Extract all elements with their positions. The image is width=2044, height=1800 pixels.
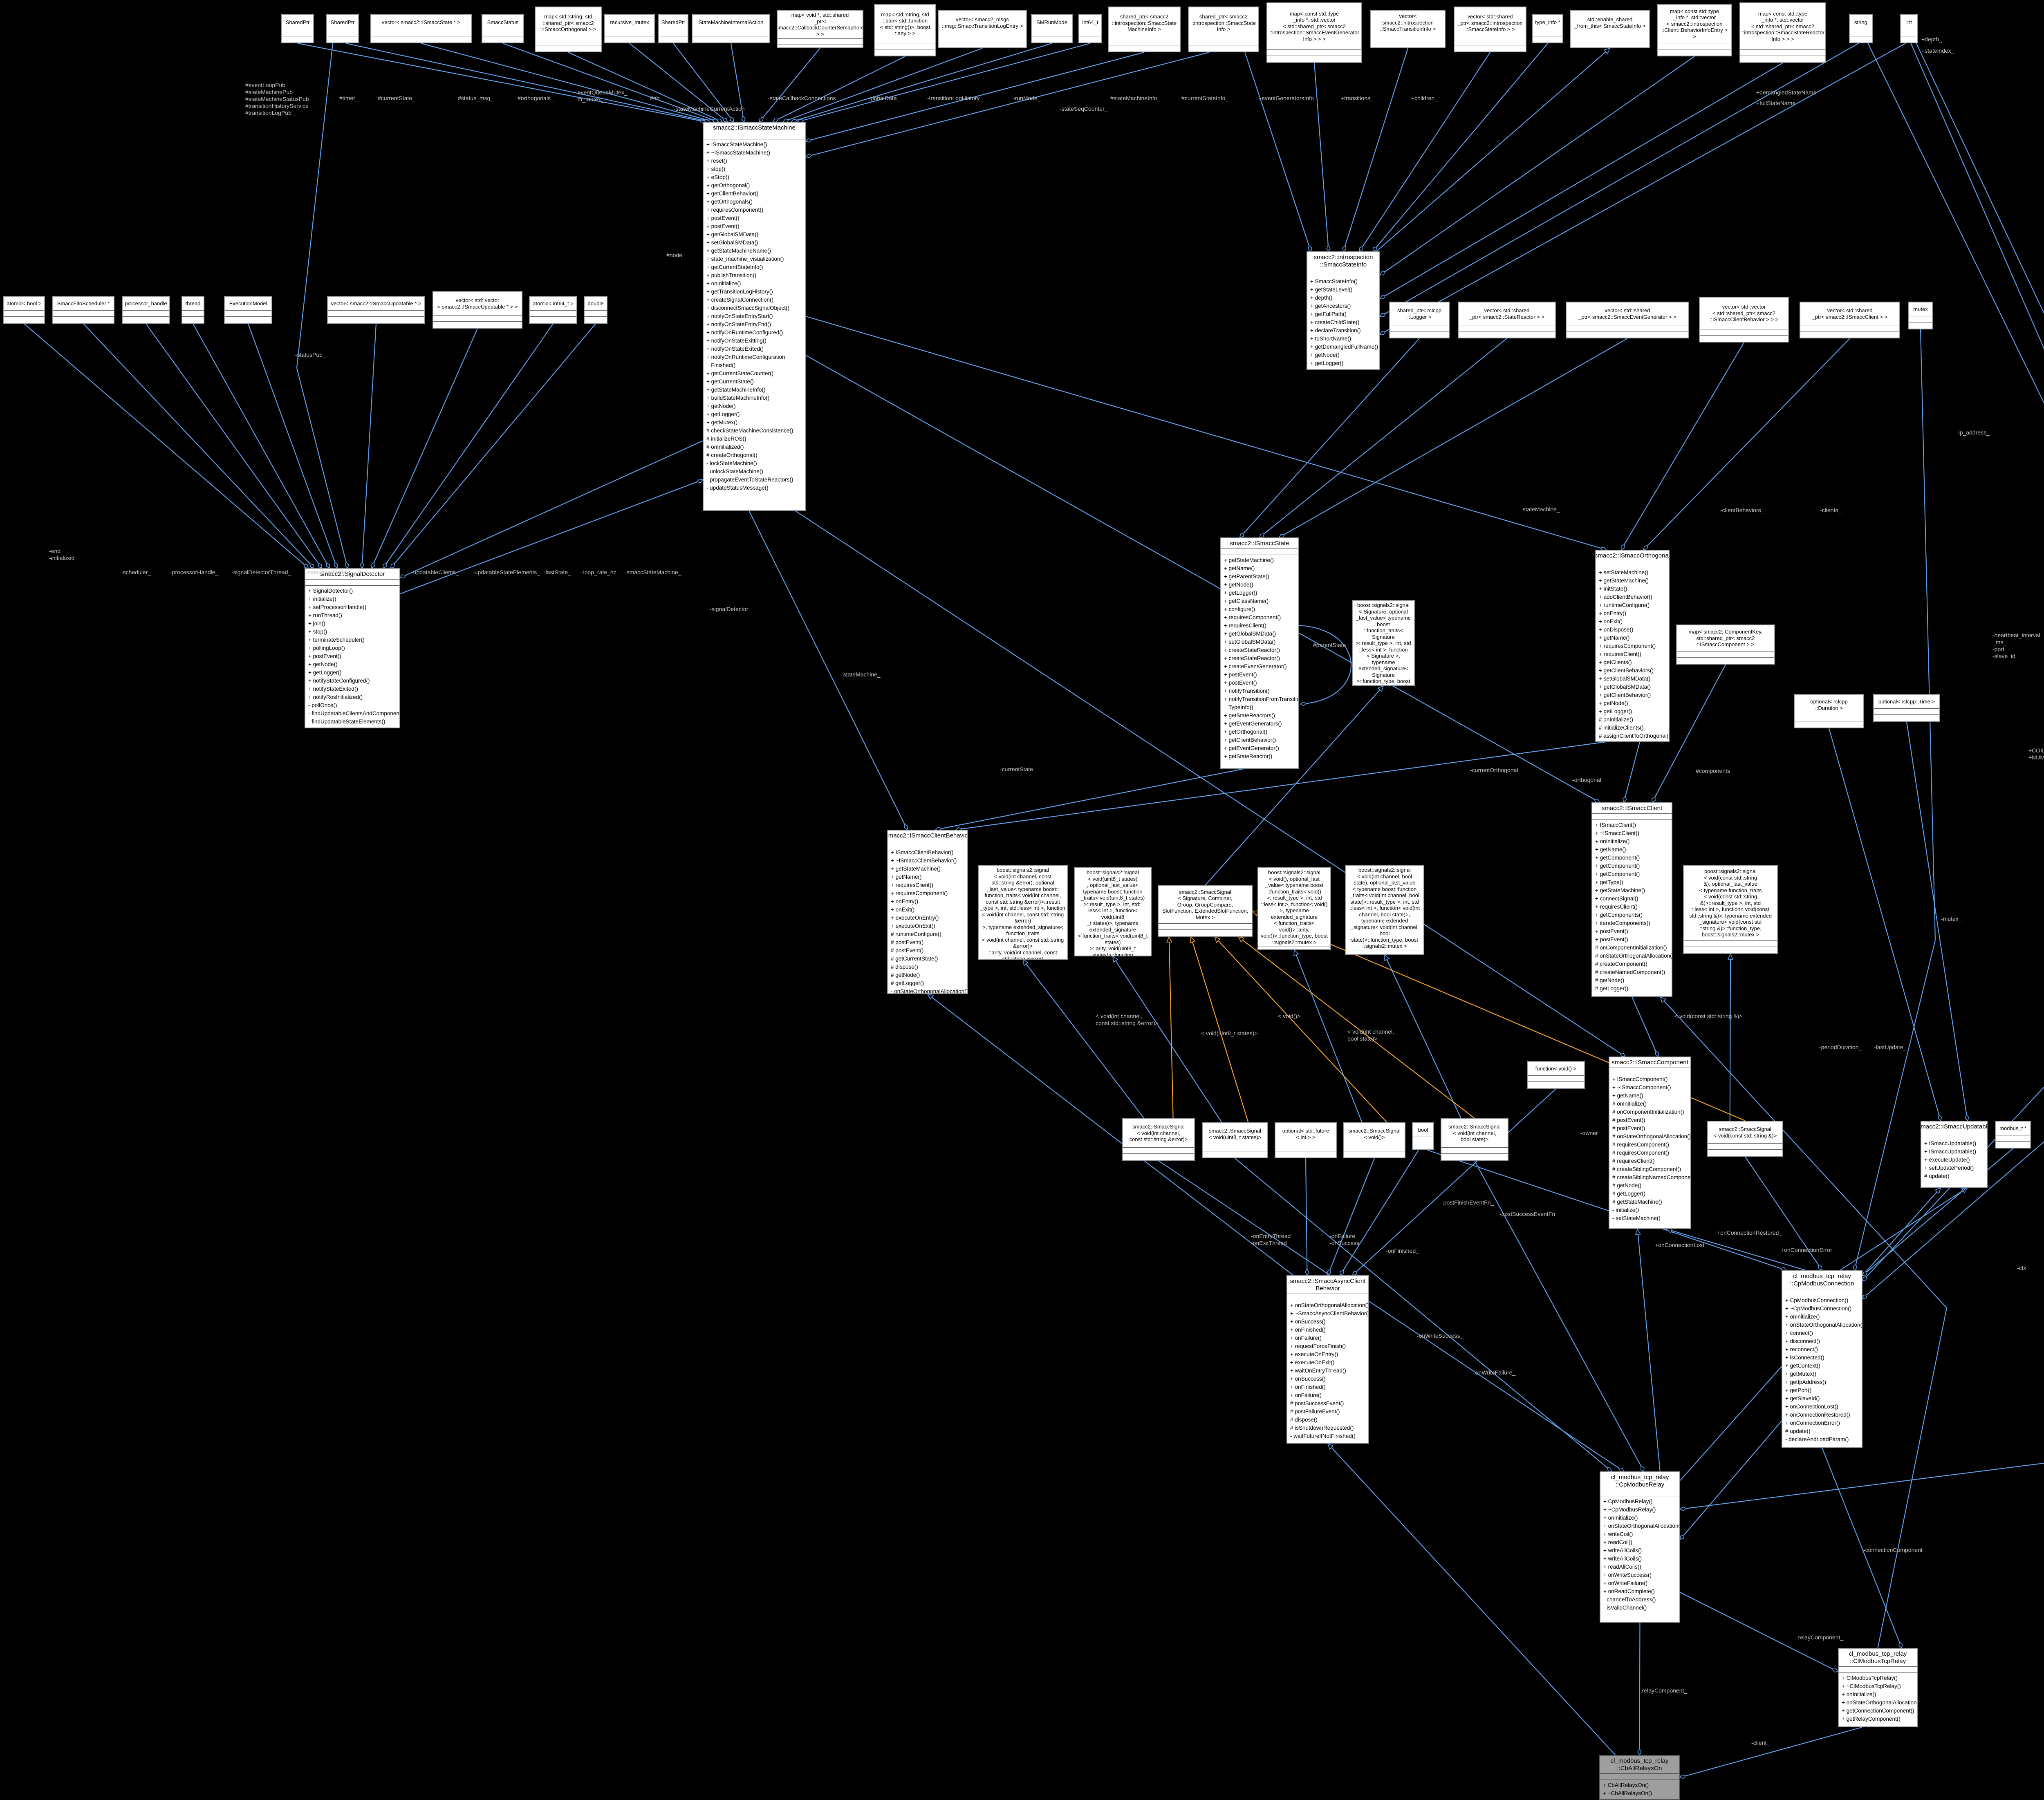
member: + getEventGenerators() — [1224, 720, 1295, 728]
member: + requestForceFinish() — [1290, 1342, 1365, 1350]
edge-label: -updatableStateElements_ — [473, 569, 540, 576]
edge-label: -clients_ — [1820, 507, 1841, 514]
edge-48 — [936, 769, 1244, 830]
member: + reconnect() — [1785, 1346, 1859, 1354]
edge-label: -clientBehaviors_ — [1720, 507, 1764, 514]
box-title: string — [1850, 15, 1872, 30]
box-title: optional< rclcpp ::Duration > — [1795, 695, 1863, 715]
class-box-IS[interactable]: smacc2::ISmaccState+ getStateMachine()+ … — [1220, 537, 1299, 769]
edge-label: #nh_ — [650, 95, 663, 102]
member: + getType() — [1595, 878, 1669, 887]
edge-44 — [1643, 338, 1850, 550]
member: + getComponent() — [1595, 854, 1669, 862]
attributes-compartment — [1609, 1068, 1690, 1074]
edge-label: -executionModel_ — [306, 569, 351, 576]
box-title: SMRunMode — [1032, 15, 1072, 30]
box-title: optional< rclcpp::Time > — [1874, 695, 1939, 709]
attributes-compartment — [282, 30, 313, 36]
edge-29 — [83, 324, 314, 568]
member: + notifyOnStateEntryEnd() — [706, 320, 802, 329]
member: + getMutex() — [706, 419, 802, 427]
operations-compartment — [778, 45, 863, 48]
member: + getName() — [891, 873, 964, 881]
edge-label: #parentState_ — [1313, 642, 1349, 649]
type-box-T18: vector< std::shared _ptr< smacc2::intros… — [1454, 7, 1526, 52]
operations-compartment — [659, 36, 688, 43]
member: + setGlobalSMData() — [706, 239, 802, 247]
member: # onComponentInitialization() — [1595, 944, 1669, 952]
member: + getSlaveId() — [1785, 1395, 1859, 1403]
edge-15 — [1245, 52, 1311, 251]
operations-compartment — [1795, 721, 1863, 728]
edge-label: -lastUpdate_ — [1874, 1044, 1906, 1051]
attributes-compartment — [53, 311, 114, 317]
type-box-T25: atomic< bool > — [3, 296, 45, 324]
edge-2 — [421, 43, 714, 122]
attributes-compartment — [1189, 39, 1258, 45]
member: + onReadComplete() — [1603, 1587, 1676, 1596]
member: + getCurrentStateInfo() — [706, 263, 802, 271]
edge-label: -stateMachine_ — [841, 671, 881, 678]
member: + getCurrentState() — [706, 378, 802, 386]
member: + getName() — [1599, 634, 1666, 642]
members-compartment: + ISmaccUpdatable()+ ISmaccUpdatable()+ … — [1921, 1138, 1987, 1187]
members-compartment: + SignalDetector()+ initialize()+ setPro… — [305, 586, 399, 728]
member: # postEvent() — [1612, 1116, 1688, 1124]
member: + onInitialize() — [1785, 1313, 1859, 1321]
operations-compartment — [1159, 930, 1252, 936]
edge-label: +onConnectionRestored_ — [1717, 1229, 1782, 1236]
edge-label: -loop_rate_hz — [581, 569, 616, 576]
member: + stop() — [706, 165, 802, 173]
member: # postEvent() — [1612, 1124, 1688, 1133]
member: + ~CpModbusConnection() — [1785, 1305, 1859, 1313]
member: + getComponents() — [1595, 911, 1669, 919]
member: # onInitialized() — [706, 443, 802, 451]
member: + ~ISmaccStateMachine() — [706, 149, 802, 157]
type-box-T31: vector< std::vector < smacc2::ISmaccUpda… — [433, 291, 522, 329]
member: # postFailureEvent() — [1290, 1408, 1365, 1416]
operations-compartment — [123, 317, 169, 323]
member: + onDispose() — [1599, 626, 1666, 634]
attributes-compartment — [1528, 1076, 1584, 1082]
class-box-IC[interactable]: smacc2::ISmaccClient+ ISmaccClient()+ ~I… — [1591, 802, 1672, 997]
type-box-T15: shared_ptr< smacc2 ::introspection::Smac… — [1188, 7, 1259, 52]
class-box-CPC[interactable]: cl_modbus_tcp_relay ::CpModbusConnection… — [1782, 1270, 1862, 1448]
member: + writeCoil() — [1603, 1530, 1676, 1538]
class-box-SSI[interactable]: smacc2::introspection ::SmaccStateInfo+ … — [1307, 251, 1380, 370]
edge-18 — [1360, 52, 1490, 251]
type-box-T5: map< std::string, std ::shared_ptr< smac… — [535, 7, 602, 52]
member: + notifyRosInitialized() — [308, 693, 397, 701]
class-box-SACB[interactable]: smacc2::SmaccAsyncClient Behavior+ onSta… — [1286, 1275, 1369, 1444]
member: + onStateOrthogonalAllocation() — [1842, 1699, 1914, 1707]
operations-compartment — [1459, 331, 1555, 338]
member: + createEventGenerator() — [1224, 663, 1295, 671]
box-title: boost::signals2::signal < void(uint8_t s… — [1075, 868, 1151, 956]
edge-label: +COIL_BASE_ADDRESS_ +NUM_CHANNELS — [2028, 747, 2044, 761]
member: + getFullPath() — [1310, 310, 1376, 318]
member: + getLogger() — [706, 410, 802, 419]
box-title: int64_t — [1079, 15, 1101, 30]
operations-compartment — [1850, 36, 1872, 43]
operations-compartment — [1189, 45, 1258, 51]
member: + ISmaccStateMachine() — [706, 141, 802, 149]
member: + requiresClient() — [1599, 650, 1666, 658]
member: # createComponent() — [1595, 960, 1669, 968]
type-box-T24: int — [1900, 14, 1918, 43]
attributes-compartment — [182, 311, 204, 317]
edge-label: -smaccStateMachine_ — [625, 569, 681, 576]
member: # requiresComponent() — [1612, 1149, 1688, 1157]
attributes-compartment — [1677, 651, 1774, 658]
attributes-compartment — [327, 30, 358, 36]
edge-label: -currentOrthogonal — [1470, 767, 1518, 774]
edge-label: -client_ — [1751, 1740, 1770, 1746]
box-title: int — [1901, 15, 1917, 30]
member: # postSuccessEvent() — [1290, 1399, 1365, 1408]
edge-30 — [146, 324, 322, 568]
attributes-compartment — [693, 30, 769, 36]
type-box-T56: bool — [1412, 1122, 1434, 1150]
member: + postEvent() — [308, 652, 397, 660]
attributes-compartment — [1459, 325, 1555, 331]
box-title: SmaccFifoScheduler * — [53, 297, 114, 311]
member: + notifyStateConfigured() — [308, 677, 397, 685]
type-box-T26: SmaccFifoScheduler * — [52, 296, 114, 324]
attributes-compartment — [305, 580, 399, 586]
attributes-compartment — [1782, 1289, 1862, 1295]
member: + notifyOnStateExitting() — [706, 337, 802, 345]
box-title: vector< smacc2::introspection ::SmaccTra… — [1371, 11, 1445, 35]
edge-label: +children_ — [1411, 95, 1438, 102]
member: + onWriteSuccess() — [1603, 1571, 1676, 1579]
member: + onSuccess() — [1290, 1375, 1365, 1383]
type-box-T53: smacc2::SmaccSignal < void(uint8_t state… — [1202, 1122, 1268, 1158]
class-box-CB[interactable]: cl_modbus_tcp_relay ::CbAllRelaysOn+ CbA… — [1599, 1755, 1680, 1800]
edge-20 — [1376, 48, 1610, 251]
operations-compartment — [1123, 1154, 1194, 1160]
member: # getNode() — [1595, 976, 1669, 985]
member: + onConnectionRestored() — [1785, 1411, 1859, 1419]
member: + onEntry() — [891, 898, 964, 906]
box-title: SharedPtr — [327, 15, 358, 30]
member: + getOrthogonals() — [706, 198, 802, 206]
class-box-ICB[interactable]: smacc2::ISmaccClientBehavior+ ISmaccClie… — [887, 830, 968, 994]
member: # postEvent() — [891, 938, 964, 947]
type-box-T20: std::enable_shared _from_this< SmaccStat… — [1570, 10, 1650, 48]
members-compartment: + setStateMachine()+ getStateMachine()+ … — [1596, 567, 1669, 741]
class-box-IU[interactable]: smacc2::ISmaccUpdatable+ ISmaccUpdatable… — [1921, 1121, 1988, 1188]
box-title: vector< smacc2::ISmaccState * > — [371, 15, 471, 30]
box-title: smacc2::ISmaccComponent — [1609, 1057, 1690, 1068]
box-title: cl_modbus_tcp_relay ::ClModbusTcpRelay — [1839, 1649, 1917, 1667]
edge-label: -onEntryThread_ -onExitThread_ — [1251, 1233, 1294, 1247]
operations-compartment — [4, 317, 44, 323]
edge-label: -orthogonal_ — [1572, 777, 1605, 784]
member: + getStateMachineInfo() — [706, 386, 802, 394]
operations-compartment — [1901, 36, 1917, 43]
member: + CpModbusConnection() — [1785, 1296, 1859, 1305]
member: + getClassName() — [1224, 597, 1295, 605]
member: + onStateOrthogonalAllocation() — [1290, 1301, 1365, 1310]
attributes-compartment — [1909, 316, 1932, 322]
member: # createNamedComponent() — [1595, 968, 1669, 976]
member: + postEvent() — [1224, 671, 1295, 679]
type-box-T41: boost::signals2::signal < void(int chann… — [978, 865, 1068, 960]
member: + getStateReactors() — [1224, 712, 1295, 720]
operations-compartment — [1079, 36, 1101, 43]
edge-60 — [1191, 937, 1248, 1122]
type-box-T3: vector< smacc2::ISmaccState * > — [370, 14, 472, 43]
operations-compartment — [536, 45, 601, 51]
edge-label: +stateIndex_ — [1921, 47, 1954, 54]
box-title: smacc2::ISmaccClientBehavior — [888, 831, 967, 841]
member: - pollOnce() — [308, 701, 397, 710]
operations-compartment — [1413, 1143, 1433, 1149]
edge-62 — [1238, 937, 1475, 1118]
member: + getContext() — [1785, 1362, 1859, 1370]
edge-label: -signalDetectorThread_ — [231, 569, 291, 576]
box-title: smacc2::SmaccAsyncClient Behavior — [1287, 1276, 1368, 1294]
member: + createStateReactor() — [1224, 646, 1295, 654]
member: + connect() — [1785, 1329, 1859, 1337]
edge-label: -scheduler_ — [121, 569, 151, 576]
operations-compartment — [1800, 331, 1899, 338]
member: + notifyOnStateEntryStart() — [706, 312, 802, 320]
members-compartment: + onStateOrthogonalAllocation()+ ~SmaccA… — [1287, 1300, 1368, 1443]
box-title: map< void *, std::shared _ptr< smacc2::C… — [778, 11, 863, 39]
member: + ClModbusTcpRelay() — [1842, 1674, 1914, 1682]
member: # createSiblingComponent() — [1612, 1165, 1688, 1173]
box-title: smacc2::ISmaccUpdatable — [1921, 1122, 1987, 1132]
member: + setUpdatePeriod() — [1924, 1164, 1984, 1172]
box-title: modbus_t * — [1996, 1122, 2030, 1135]
box-title: SharedPtr — [282, 15, 313, 30]
box-title: smacc2::SmaccSignal < void(const std::st… — [1708, 1122, 1782, 1144]
member: + getClientBehaviors() — [1599, 667, 1666, 675]
operations-compartment — [1109, 45, 1180, 51]
edge-21 — [1380, 56, 1694, 275]
class-box-SM[interactable]: smacc2::ISmaccStateMachine+ ISmaccStateM… — [703, 122, 806, 511]
operations-compartment — [1032, 36, 1072, 43]
box-title: smacc2::ISmaccClient — [1592, 803, 1672, 814]
member: + getConnectionComponent() — [1842, 1707, 1914, 1715]
operations-compartment — [482, 36, 523, 43]
type-box-T17: vector< smacc2::introspection ::SmaccTra… — [1370, 10, 1446, 48]
member: + writeAllCoils() — [1603, 1547, 1676, 1555]
members-compartment: + ISmaccClientBehavior()+ ~ISmaccClientB… — [888, 847, 967, 993]
member: + getNode() — [1224, 581, 1295, 589]
type-box-T57: smacc2::SmaccSignal < void(int channel, … — [1441, 1118, 1508, 1161]
edge-12 — [798, 43, 1090, 122]
members-compartment: + ClModbusTcpRelay()+ ~ClModbusTcpRelay(… — [1839, 1673, 1917, 1726]
member: + getComponent() — [1595, 870, 1669, 878]
member: + setGlobalSMData() — [1599, 675, 1666, 683]
edge-9 — [773, 56, 905, 122]
type-box-T19: type_info * — [1532, 14, 1563, 43]
members-compartment: + SmaccStateInfo()+ getStateLevel()+ dep… — [1307, 276, 1379, 369]
box-title: type_info * — [1533, 15, 1562, 30]
member: + CpModbusRelay() — [1603, 1498, 1676, 1506]
operations-compartment — [1203, 1151, 1267, 1157]
edge-55 — [1113, 956, 1222, 1122]
member: + postEvent() — [1595, 927, 1669, 936]
edge-label: -globalData_ — [867, 95, 900, 102]
edge-35 — [372, 329, 477, 568]
edge-label: -ip_address_ — [1957, 429, 1990, 436]
box-title: map< const std::type _info *, std::vecto… — [1740, 3, 1825, 50]
member: # initializeROS() — [706, 435, 802, 443]
operations-compartment — [585, 317, 607, 323]
attributes-compartment — [1596, 561, 1669, 567]
member: + getNode() — [1310, 351, 1376, 359]
edge-28 — [24, 324, 308, 568]
edge-label: -currentState — [1000, 766, 1033, 773]
member: + executeUpdate() — [1924, 1156, 1984, 1164]
class-box-CPR[interactable]: cl_modbus_tcp_relay ::CpModbusRelay+ CpM… — [1600, 1471, 1680, 1623]
member: + eStop() — [706, 173, 802, 181]
attributes-compartment — [1307, 270, 1379, 276]
edge-label: #currentState_ — [378, 95, 415, 102]
edge-label: #node_ — [666, 252, 686, 259]
type-box-T32: atomic< int64_t > — [529, 296, 577, 324]
box-title: shared_ptr< smacc2 ::introspection::Smac… — [1189, 7, 1258, 39]
class-box-CLR[interactable]: cl_modbus_tcp_relay ::ClModbusTcpRelay+ … — [1838, 1648, 1918, 1727]
class-box-IO[interactable]: smacc2::ISmaccOrthogonal+ setStateMachin… — [1595, 550, 1670, 742]
class-box-SD[interactable]: smacc2::SignalDetector+ SignalDetector()… — [305, 568, 400, 728]
box-title: double — [585, 297, 607, 311]
attributes-compartment — [1032, 30, 1072, 36]
operations-compartment — [1390, 331, 1449, 338]
edge-label: #orthogonals_ — [518, 95, 554, 102]
edge-label: -transitionLogHistory_ — [927, 95, 983, 102]
operations-compartment — [1567, 331, 1688, 338]
member: + state_machine_visualization() — [706, 255, 802, 263]
edge-47 — [749, 511, 907, 830]
type-box-T49: optional< rclcpp::Time > — [1873, 694, 1940, 722]
member: + runtimeConfigure() — [1599, 601, 1666, 609]
type-box-T45: boost::signals2::signal < void(int chann… — [1345, 865, 1424, 955]
attributes-compartment — [1600, 1774, 1679, 1780]
edge-label: < void(int channel, bool state)> — [1347, 1028, 1394, 1042]
members-compartment: + getStateMachine()+ getName()+ getParen… — [1221, 555, 1298, 768]
edge-label: +onConnectionLost_ — [1655, 1242, 1708, 1249]
edge-label: #status_msg_ — [458, 95, 493, 102]
member: + getPort() — [1785, 1386, 1859, 1395]
attributes-compartment — [1921, 1132, 1987, 1138]
member: + notifyTransitionFromTransition TypeInf… — [1224, 695, 1295, 712]
type-box-T27: processor_handle — [122, 296, 170, 324]
box-title: bool — [1413, 1123, 1433, 1137]
type-box-T35: vector< std::shared _ptr< smacc2::StateR… — [1458, 302, 1556, 338]
edge-label: #stateMachineInfo_ — [1110, 95, 1160, 102]
edge-label: -statusPub_ — [295, 351, 326, 358]
edge-59 — [1169, 937, 1173, 1118]
edge-label: -onFinished_ — [1386, 1247, 1419, 1254]
edge-26 — [1862, 43, 2044, 1299]
operations-compartment — [328, 317, 424, 323]
edge-70 — [1159, 1161, 1624, 1471]
edge-69 — [1428, 1150, 1786, 1270]
attributes-compartment — [1371, 35, 1445, 41]
box-title: boost::signals2::signal < void(const std… — [1684, 866, 1777, 941]
member: + configure() — [1224, 605, 1295, 613]
edge-label: -end_ -initialized_ — [49, 548, 78, 562]
member: + getOrthogonal() — [1224, 728, 1295, 736]
class-box-ICP[interactable]: smacc2::ISmaccComponent+ ISmaccComponent… — [1609, 1057, 1691, 1229]
type-box-T54: optional< std::future < int > > — [1275, 1122, 1337, 1158]
type-box-T34: shared_ptr< rclcpp ::Logger > — [1389, 302, 1450, 338]
member: + reset() — [706, 157, 802, 165]
attributes-compartment — [1159, 924, 1252, 930]
type-box-T6: recursive_mutex — [604, 14, 655, 43]
operations-compartment — [225, 317, 271, 323]
type-box-T23: string — [1849, 14, 1873, 43]
attributes-compartment — [605, 30, 654, 36]
member: + ~CbAllRelaysOn() — [1603, 1789, 1676, 1798]
box-title: vector< std::shared _ptr< smacc2::ISmacc… — [1800, 302, 1899, 325]
member: + toShortName() — [1310, 335, 1376, 343]
member: + SignalDetector() — [308, 587, 397, 595]
type-box-T52: smacc2::SmaccSignal < void(int channel, … — [1122, 1118, 1195, 1161]
edge-19 — [1373, 43, 1548, 251]
attributes-compartment — [585, 311, 607, 317]
edge-43 — [1621, 343, 1744, 550]
type-box-T44: boost::signals2::signal < void(), option… — [1257, 867, 1331, 950]
operations-compartment — [1740, 56, 1825, 62]
member: # isShutdownRequested() — [1290, 1424, 1365, 1432]
edge-1 — [346, 43, 710, 122]
box-title: smacc2::introspection ::SmaccStateInfo — [1307, 252, 1379, 270]
box-title: smacc2::ISmaccStateMachine — [704, 123, 805, 133]
edge-68 — [1340, 1150, 1419, 1275]
collaboration-diagram: smacc2::ISmaccStateMachine+ ISmaccStateM… — [0, 0, 2044, 1800]
box-title: boost::signals2::signal < Signature, opt… — [1353, 601, 1414, 686]
member: + onExit() — [1599, 618, 1666, 626]
member: + writeAllCoils() — [1603, 1555, 1676, 1563]
member: + getLogger() — [1310, 359, 1376, 367]
attributes-compartment — [371, 30, 471, 36]
edge-82 — [1632, 997, 1658, 1057]
member: + readCoil() — [1603, 1538, 1676, 1547]
member: # requiresComponent() — [1612, 1141, 1688, 1149]
edge-label: #timer_ — [339, 95, 359, 102]
member: + getTransitionLogHistory() — [706, 288, 802, 296]
attributes-compartment — [1275, 1145, 1336, 1151]
member: + getCurrentStateCounter() — [706, 369, 802, 378]
box-title: map< const std::type _info *, std::vecto… — [1658, 5, 1731, 43]
member: - waitFutureIfNotFinished() — [1290, 1432, 1365, 1440]
operations-compartment — [1455, 45, 1526, 51]
type-box-T30: vector< smacc2::ISmaccUpdatable * > — [327, 296, 425, 324]
member: # dispose() — [891, 963, 964, 971]
member: + getOrthogonal() — [706, 181, 802, 190]
operations-compartment — [1571, 41, 1649, 47]
box-title: atomic< int64_t > — [530, 297, 576, 311]
member: + addClientBehavior() — [1599, 593, 1666, 601]
member: + postEvent() — [1224, 679, 1295, 687]
member: + requiresClient() — [1224, 622, 1295, 630]
type-box-T59: smacc2::SmaccSignal < void(const std::st… — [1707, 1121, 1783, 1157]
edge-label: #currentStateInfo_ — [1181, 95, 1228, 102]
type-box-T36: vector< std::shared _ptr< smacc2::SmaccE… — [1566, 302, 1689, 338]
box-title: boost::signals2::signal < void(), option… — [1258, 868, 1330, 947]
edge-label: #eventLoopPub_ #stateMachinePub #stateMa… — [245, 82, 312, 116]
attributes-compartment — [704, 133, 805, 139]
member: # createOrthogonal() — [706, 451, 802, 459]
edge-label: -stateMachineCurrentAction — [674, 105, 745, 112]
